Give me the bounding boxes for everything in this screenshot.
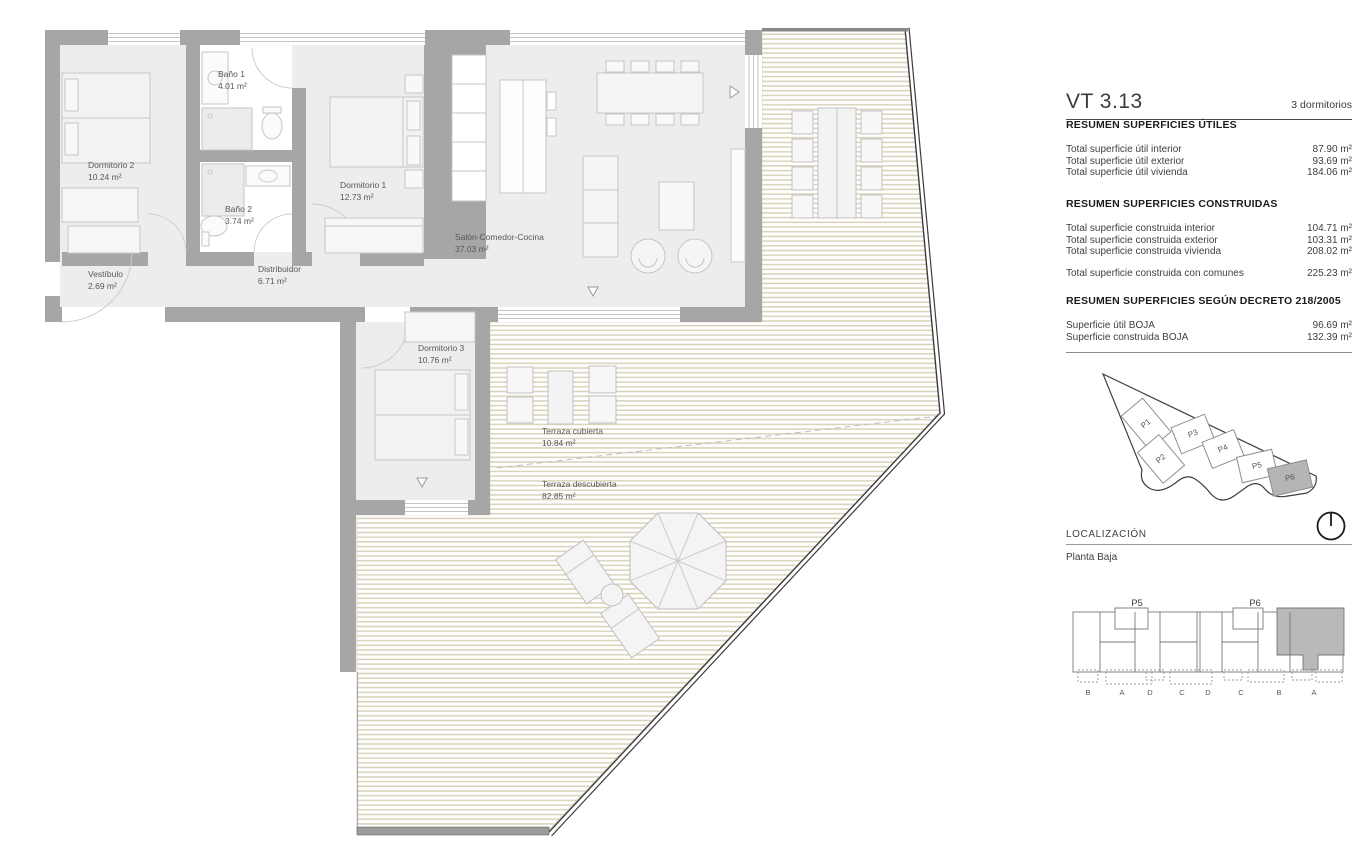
unit-letter: C [1179, 688, 1185, 697]
room-area: 10.24 m² [88, 172, 122, 182]
area-value: 225.23 m² [1307, 268, 1352, 280]
site-plan: P1 P2 P3 P4 P5 P6 [1103, 374, 1316, 500]
area-row: Total superficie construida exterior 103… [1066, 235, 1352, 247]
room-area: 10.76 m² [418, 355, 452, 365]
room-area: 2.69 m² [88, 281, 117, 291]
room-area: 82.85 m² [542, 491, 576, 501]
unit-code: VT 3.13 [1066, 90, 1143, 114]
area-value: 93.69 m² [1313, 156, 1352, 168]
room-label: Dormitorio 3 [418, 343, 465, 353]
unit-letter: C [1238, 688, 1244, 697]
room-label: Terraza cubierta [542, 426, 603, 436]
area-label: Total superficie construida interior [1066, 223, 1215, 235]
room-label: Distribuidor [258, 264, 301, 274]
room-label: Dormitorio 1 [340, 180, 387, 190]
room-label: Baño 2 [225, 204, 252, 214]
localizacion-block: LOCALIZACIÓN Planta Baja [1066, 529, 1352, 563]
block-label-p5: P5 [1131, 598, 1143, 609]
room-area: 3.74 m² [225, 216, 254, 226]
area-label: Total superficie útil vivienda [1066, 167, 1188, 179]
section-title: RESUMEN SUPERFICIES CONSTRUIDAS [1066, 198, 1352, 210]
room-area: 37.03 m² [455, 244, 489, 254]
room-label: Dormitorio 2 [88, 160, 135, 170]
area-row: Total superficie útil exterior 93.69 m² [1066, 156, 1352, 168]
area-value: 96.69 m² [1313, 320, 1352, 332]
unit-letter: D [1205, 688, 1211, 697]
area-row: Total superficie útil vivienda 184.06 m² [1066, 167, 1352, 179]
room-label: Vestíbulo [88, 269, 123, 279]
location-diagram: P5 P6 B A D C D C B A [1073, 598, 1344, 697]
room-area: 6.71 m² [258, 276, 287, 286]
room-label: Salón-Comedor-Cocina [455, 232, 544, 242]
area-row-total: Total superficie construida con comunes … [1066, 268, 1352, 280]
section-superficies-construidas: RESUMEN SUPERFICIES CONSTRUIDAS Total su… [1066, 198, 1352, 279]
area-label: Total superficie útil interior [1066, 144, 1182, 156]
section-title: RESUMEN SUPERFICIES ÚTILES [1066, 119, 1352, 131]
area-row: Total superficie útil interior 87.90 m² [1066, 144, 1352, 156]
block-label-p6: P6 [1249, 598, 1261, 609]
area-value: 87.90 m² [1313, 144, 1352, 156]
room-area: 4.01 m² [218, 81, 247, 91]
unit-letter: B [1276, 688, 1281, 697]
room-label: Baño 1 [218, 69, 245, 79]
area-label: Total superficie construida con comunes [1066, 268, 1244, 280]
room-area: 12.73 m² [340, 192, 374, 202]
area-value: 208.02 m² [1307, 246, 1352, 258]
area-label: Superficie útil BOJA [1066, 320, 1155, 332]
side-table [601, 584, 623, 606]
area-value: 104.71 m² [1307, 223, 1352, 235]
room-area: 10.84 m² [542, 438, 576, 448]
parasol-icon [630, 513, 726, 609]
plan-sheet: { "panel": { "unit_code": "VT 3.13", "un… [0, 0, 1369, 851]
section-decreto: RESUMEN SUPERFICIES SEGÚN DECRETO 218/20… [1066, 295, 1352, 343]
unit-type: 3 dormitorios [1291, 99, 1352, 111]
unit-letter: D [1147, 688, 1153, 697]
section-superficies-utiles: RESUMEN SUPERFICIES ÚTILES Total superfi… [1066, 119, 1352, 179]
area-label: Superficie construida BOJA [1066, 332, 1188, 344]
floor-name: Planta Baja [1066, 552, 1352, 563]
area-label: Total superficie construida exterior [1066, 235, 1218, 247]
area-value: 132.39 m² [1307, 332, 1352, 344]
room-label: Terraza descubierta [542, 479, 617, 489]
area-row: Total superficie construida interior 104… [1066, 223, 1352, 235]
unit-title-block: VT 3.13 3 dormitorios [1066, 90, 1352, 120]
localizacion-label: LOCALIZACIÓN [1066, 529, 1352, 545]
area-row: Superficie útil BOJA 96.69 m² [1066, 320, 1352, 332]
area-row: Total superficie construida vivienda 208… [1066, 246, 1352, 258]
area-value: 103.31 m² [1307, 235, 1352, 247]
unit-letter: A [1311, 688, 1316, 697]
area-row: Superficie construida BOJA 132.39 m² [1066, 332, 1352, 344]
area-value: 184.06 m² [1307, 167, 1352, 179]
panel-divider [1066, 352, 1352, 353]
area-label: Total superficie útil exterior [1066, 156, 1184, 168]
section-title: RESUMEN SUPERFICIES SEGÚN DECRETO 218/20… [1066, 295, 1352, 307]
area-label: Total superficie construida vivienda [1066, 246, 1221, 258]
unit-letter: A [1119, 688, 1124, 697]
unit-letter: B [1085, 688, 1090, 697]
